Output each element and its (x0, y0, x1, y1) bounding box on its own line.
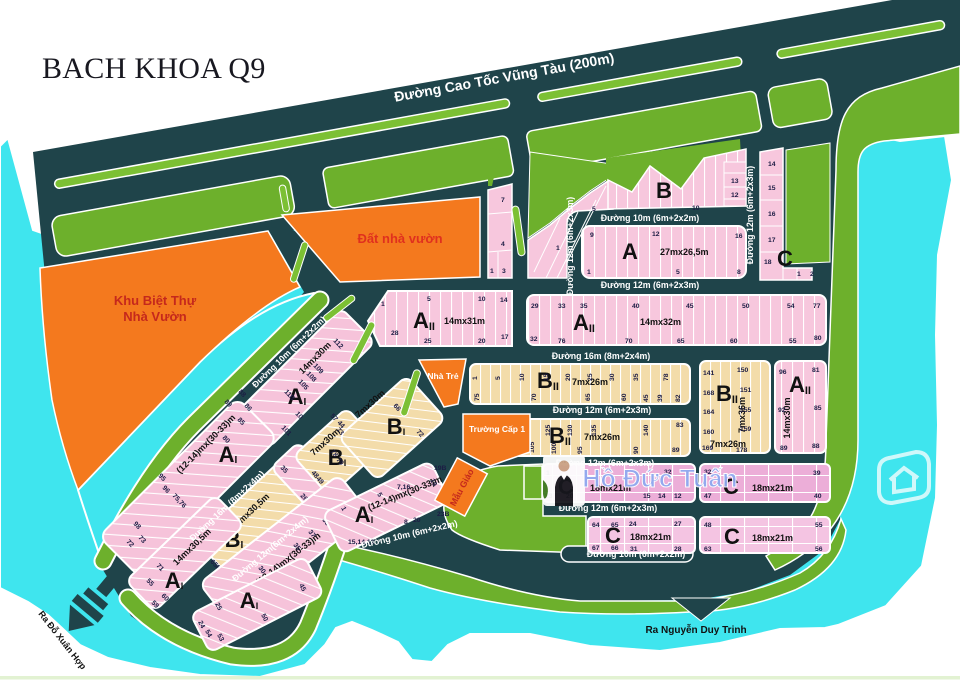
svg-text:18: 18 (764, 259, 772, 266)
svg-text:77: 77 (813, 303, 821, 310)
svg-text:150: 150 (737, 367, 749, 374)
svg-text:7,16: 7,16 (397, 484, 410, 491)
svg-text:B: B (656, 178, 672, 203)
svg-text:39: 39 (813, 470, 821, 477)
svg-text:5: 5 (592, 206, 596, 213)
svg-text:70: 70 (531, 393, 538, 401)
svg-text:50: 50 (742, 303, 750, 310)
svg-text:55: 55 (815, 522, 823, 529)
svg-text:95: 95 (577, 446, 584, 454)
svg-text:8: 8 (737, 269, 741, 276)
svg-text:76: 76 (558, 338, 566, 345)
svg-text:24: 24 (629, 521, 637, 528)
svg-text:39: 39 (657, 394, 664, 402)
svg-text:10: 10 (478, 296, 486, 303)
svg-text:1: 1 (587, 269, 591, 276)
svg-text:81: 81 (812, 367, 820, 374)
svg-text:40: 40 (814, 493, 822, 500)
svg-text:169: 169 (702, 445, 714, 452)
svg-text:Đất nhà vườn: Đất nhà vườn (357, 231, 442, 246)
svg-text:17: 17 (501, 334, 509, 341)
svg-text:14mx30m: 14mx30m (782, 397, 792, 438)
svg-text:20: 20 (413, 517, 421, 524)
svg-text:Hồ Đức Tuấn: Hồ Đức Tuấn (582, 465, 737, 493)
svg-text:168: 168 (703, 390, 715, 397)
svg-text:4: 4 (501, 241, 505, 248)
svg-text:Đường 12m (6m+2x3m): Đường 12m (6m+2x3m) (745, 166, 755, 264)
svg-text:AI: AI (165, 568, 183, 593)
svg-text:10: 10 (519, 373, 526, 381)
svg-text:40: 40 (632, 303, 640, 310)
svg-text:3: 3 (502, 268, 506, 275)
svg-text:96: 96 (779, 369, 787, 376)
svg-text:Đường 12m (6m+2x3m): Đường 12m (6m+2x3m) (553, 405, 651, 415)
svg-text:18mx21m: 18mx21m (630, 532, 671, 542)
svg-text:Nhà Trẻ: Nhà Trẻ (427, 371, 458, 381)
svg-text:35: 35 (633, 373, 640, 381)
svg-text:140: 140 (643, 424, 650, 436)
svg-text:Đường 12m (6m+2x3m): Đường 12m (6m+2x3m) (601, 280, 699, 290)
svg-text:65: 65 (677, 338, 685, 345)
svg-text:5: 5 (676, 269, 680, 276)
svg-text:65: 65 (585, 393, 592, 401)
svg-text:Đường 12m (6m+2x3m): Đường 12m (6m+2x3m) (565, 197, 575, 295)
svg-text:C: C (724, 524, 740, 549)
svg-text:8: 8 (404, 519, 408, 526)
svg-text:70: 70 (625, 338, 633, 345)
svg-text:12: 12 (674, 493, 682, 500)
svg-text:16: 16 (768, 211, 776, 218)
svg-text:15: 15 (543, 373, 550, 381)
svg-text:17: 17 (768, 237, 776, 244)
svg-text:7mx26m: 7mx26m (584, 432, 620, 442)
svg-text:25: 25 (424, 338, 432, 345)
svg-text:160: 160 (703, 429, 715, 436)
svg-text:Đường 16m (8m+2x4m): Đường 16m (8m+2x4m) (552, 351, 650, 361)
svg-text:7: 7 (501, 197, 505, 204)
svg-text:15: 15 (768, 185, 776, 192)
svg-text:9: 9 (590, 232, 594, 239)
svg-text:13: 13 (731, 178, 739, 185)
svg-text:Khu Biệt Thự: Khu Biệt Thự (114, 293, 197, 308)
svg-text:12: 12 (731, 192, 739, 199)
svg-text:27mx26,5m: 27mx26,5m (660, 247, 709, 257)
svg-text:75: 75 (474, 393, 481, 401)
svg-text:15: 15 (643, 493, 651, 500)
svg-text:89: 89 (672, 447, 680, 454)
svg-text:14: 14 (500, 297, 508, 304)
svg-text:1: 1 (490, 268, 494, 275)
svg-text:83: 83 (676, 422, 684, 429)
svg-text:28: 28 (391, 330, 399, 337)
svg-text:18mx21m: 18mx21m (752, 533, 793, 543)
svg-text:89: 89 (780, 445, 788, 452)
svg-text:BI: BI (387, 414, 405, 439)
svg-text:14: 14 (768, 161, 776, 168)
svg-text:82: 82 (675, 394, 682, 402)
svg-text:47: 47 (704, 493, 712, 500)
svg-text:16: 16 (735, 233, 743, 240)
svg-text:85: 85 (814, 405, 822, 412)
svg-text:BACH KHOA Q9: BACH KHOA Q9 (42, 52, 266, 85)
svg-text:45: 45 (643, 394, 650, 402)
svg-text:125: 125 (545, 424, 552, 436)
svg-text:135: 135 (591, 424, 598, 436)
svg-text:35: 35 (580, 303, 588, 310)
svg-text:23B: 23B (437, 511, 450, 518)
svg-text:10: 10 (692, 205, 700, 212)
svg-text:5: 5 (427, 296, 431, 303)
svg-text:AI: AI (240, 588, 258, 613)
svg-text:14: 14 (658, 493, 666, 500)
svg-text:64: 64 (592, 522, 600, 529)
svg-text:48: 48 (704, 522, 712, 529)
svg-text:155: 155 (740, 407, 752, 414)
svg-text:56: 56 (815, 546, 823, 553)
svg-text:27: 27 (674, 521, 682, 528)
svg-text:55: 55 (789, 338, 797, 345)
svg-text:2: 2 (810, 271, 814, 278)
svg-text:100: 100 (551, 442, 558, 454)
svg-text:60: 60 (621, 393, 628, 401)
svg-text:1: 1 (556, 245, 560, 252)
svg-text:20: 20 (565, 373, 572, 381)
svg-text:88: 88 (812, 443, 820, 450)
svg-text:Trường Cấp 1: Trường Cấp 1 (469, 424, 525, 434)
svg-text:14mx31m: 14mx31m (444, 316, 485, 326)
svg-text:19B: 19B (434, 465, 447, 472)
svg-text:178: 178 (736, 447, 748, 454)
svg-text:25: 25 (587, 373, 594, 381)
svg-text:32: 32 (530, 336, 538, 343)
svg-text:63: 63 (704, 546, 712, 553)
svg-text:141: 141 (703, 370, 715, 377)
svg-text:14mx32m: 14mx32m (640, 317, 681, 327)
svg-text:1: 1 (797, 271, 801, 278)
svg-text:65: 65 (611, 522, 619, 529)
svg-text:151: 151 (740, 387, 752, 394)
svg-text:164: 164 (703, 409, 715, 416)
svg-text:A: A (622, 239, 638, 264)
svg-text:1: 1 (381, 301, 385, 308)
svg-text:45: 45 (686, 303, 694, 310)
svg-text:30: 30 (609, 373, 616, 381)
svg-text:92: 92 (778, 407, 786, 414)
svg-text:Đường 10m (6m+2x2m): Đường 10m (6m+2x2m) (587, 549, 685, 559)
svg-text:90: 90 (633, 446, 640, 454)
svg-text:Ra Nguyễn Duy Trinh: Ra Nguyễn Duy Trinh (645, 623, 746, 636)
svg-text:18mx21m: 18mx21m (752, 483, 793, 493)
svg-text:Đường 10m (6m+2x2m): Đường 10m (6m+2x2m) (601, 213, 699, 223)
svg-text:1: 1 (472, 376, 479, 380)
svg-text:5: 5 (495, 376, 502, 380)
svg-text:78: 78 (663, 373, 670, 381)
svg-text:12: 12 (652, 231, 660, 238)
svg-text:C: C (777, 246, 793, 271)
svg-text:33: 33 (558, 303, 566, 310)
svg-text:80: 80 (814, 335, 822, 342)
svg-text:54: 54 (787, 303, 795, 310)
svg-text:29: 29 (531, 303, 539, 310)
svg-text:130: 130 (567, 424, 574, 436)
svg-text:20: 20 (478, 338, 486, 345)
svg-text:60: 60 (730, 338, 738, 345)
svg-text:BI: BI (328, 445, 346, 470)
svg-text:Nhà Vườn: Nhà Vườn (123, 309, 186, 324)
svg-text:159: 159 (740, 426, 752, 433)
